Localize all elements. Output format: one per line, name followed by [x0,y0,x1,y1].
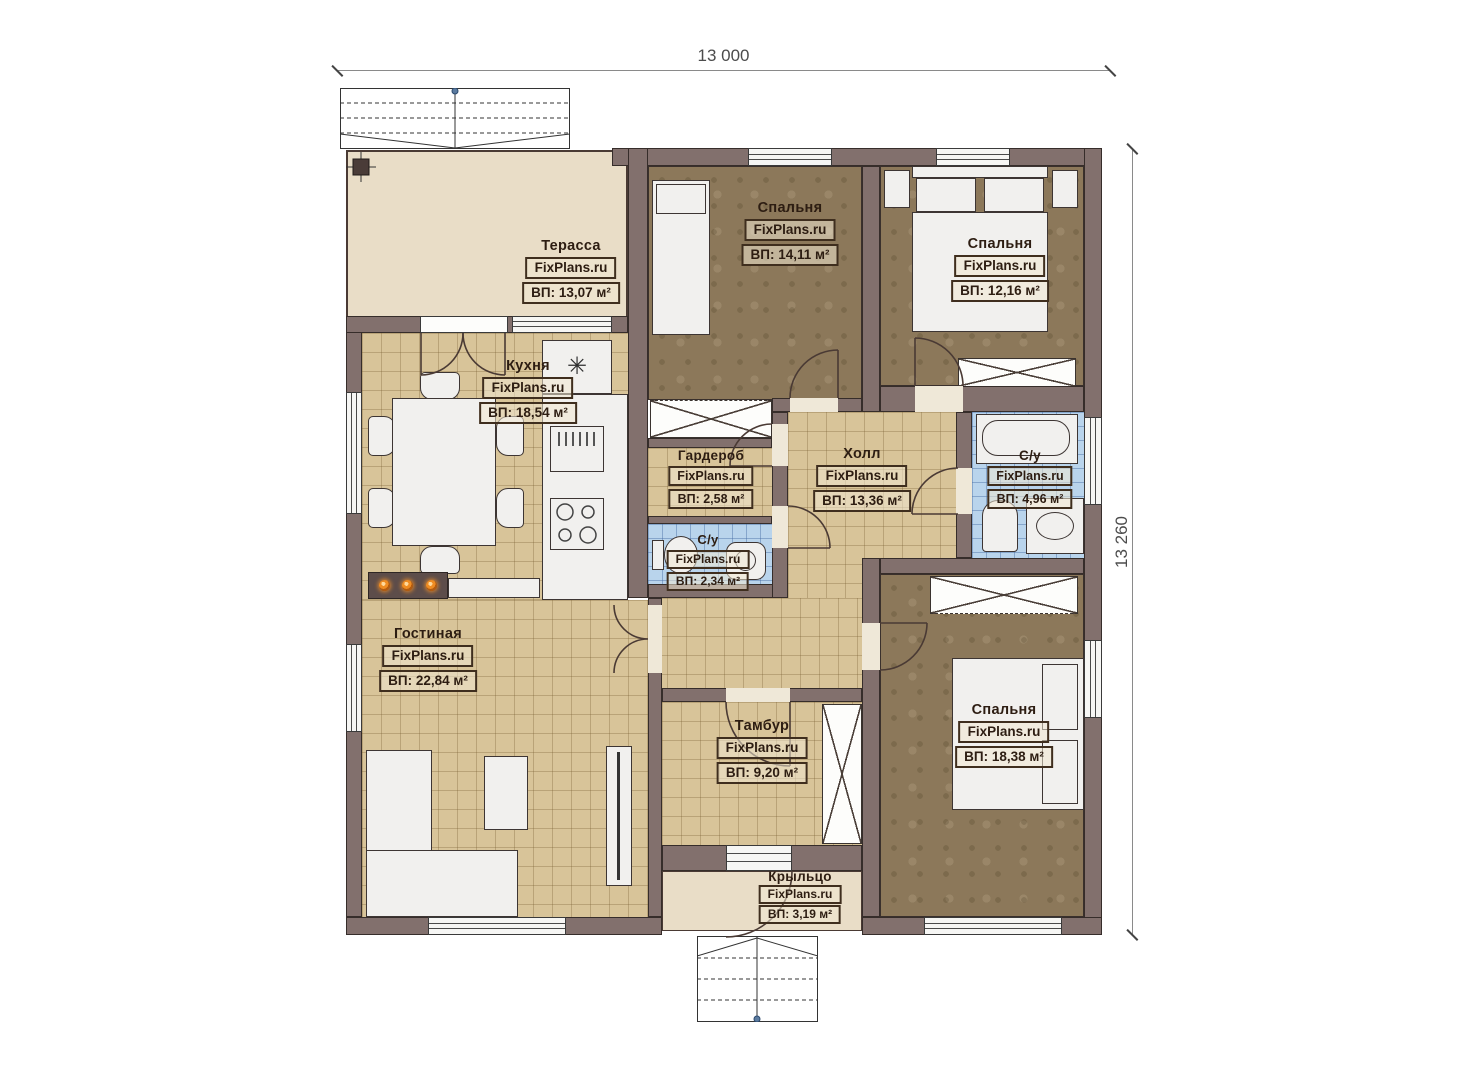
tv-panel [617,752,620,880]
sofa-section [366,850,518,917]
window-bedroom1-top [748,148,832,166]
vestibule-closet [822,704,862,844]
room-area: ВП: 2,34 м² [667,572,749,591]
room-name: Гостиная [394,626,462,642]
room-label-living: Гостиная FixPlans.ru ВП: 22,84 м² [379,626,477,692]
pillow [656,184,706,214]
watermark: FixPlans.ru [526,257,617,279]
room-name: Крыльцо [768,869,832,884]
window-bath-right [1084,417,1102,505]
room-label-vestibule: Тамбур FixPlans.ru ВП: 9,20 м² [717,718,808,784]
toilet-tank [652,540,664,570]
window-living-left [346,644,362,732]
watermark: FixPlans.ru [955,255,1046,277]
door-opening [726,688,790,702]
entry-door-threshold [726,845,792,871]
french-door-opening [420,316,508,333]
door-opening [956,468,972,514]
watermark: FixPlans.ru [745,219,836,241]
room-area: ВП: 18,54 м² [479,402,577,424]
dining-chair [420,372,460,400]
nightstand [884,170,910,208]
room-name: Гардероб [678,448,744,463]
watermark: FixPlans.ru [987,466,1072,486]
watermark: FixPlans.ru [383,645,474,667]
door-opening [915,386,963,412]
oven [550,426,604,472]
column-marker [346,152,376,182]
window-bedroom3-right [1084,640,1102,718]
door-opening [790,398,838,412]
room-label-wardrobe: Гардероб FixPlans.ru ВП: 2,58 м² [668,448,753,509]
room-name: Кухня [506,358,550,374]
nightstand [1052,170,1078,208]
dining-chair [420,546,460,574]
watermark: FixPlans.ru [667,550,750,569]
window-terrace [512,316,612,333]
room-name: Тамбур [735,718,789,734]
room-area: ВП: 2,58 м² [669,489,754,509]
door-opening [772,506,788,548]
watermark: FixPlans.ru [817,465,908,487]
fireplace [368,572,448,599]
room-label-bedroom1: Спальня FixPlans.ru ВП: 14,11 м² [742,200,839,266]
room-area: ВП: 9,20 м² [717,762,807,784]
room-label-porch: Крыльцо FixPlans.ru ВП: 3,19 м² [759,869,842,924]
fireplace-light [379,580,390,591]
wall-kitchen-bedroom1 [628,148,648,598]
room-area: ВП: 22,84 м² [379,670,477,692]
corridor-floor [648,598,862,688]
window-kitchen-left [346,392,362,514]
room-area: ВП: 18,38 м² [955,746,1053,768]
floor-plan: 13 000 13 260 [0,0,1473,1080]
bedroom1-closet [650,400,772,438]
door-opening [862,623,880,670]
watermark: FixPlans.ru [717,737,808,759]
room-area: ВП: 4,96 м² [988,489,1073,509]
room-name: Холл [843,446,881,462]
room-name: Терасса [541,238,601,254]
door-opening [648,605,662,673]
dining-chair [496,488,524,528]
bedroom3-closet [930,576,1078,614]
room-area: ВП: 13,07 м² [522,282,620,304]
room-area: ВП: 13,36 м² [813,490,911,512]
kitchen-counter [542,394,628,600]
room-name: Спальня [968,236,1033,252]
watermark: FixPlans.ru [668,466,753,486]
double-bed-headboard [912,166,1048,178]
room-label-hall: Холл FixPlans.ru ВП: 13,36 м² [813,446,911,512]
room-label-bedroom3: Спальня FixPlans.ru ВП: 18,38 м² [955,702,1053,768]
window-bedroom2-top [936,148,1010,166]
wall-closet-wardrobe [648,438,772,448]
coffee-table [484,756,528,830]
stove [550,498,604,550]
room-name: Спальня [972,702,1037,718]
window-living-bottom [428,917,566,935]
watermark: FixPlans.ru [483,377,574,399]
window-bedroom3-bottom [924,917,1062,935]
dimension-line-top [337,70,1110,71]
room-name: С/у [697,532,718,547]
room-area: ВП: 12,16 м² [951,280,1049,302]
watermark: FixPlans.ru [759,885,842,904]
sink-bowl [1036,512,1074,540]
watermark: FixPlans.ru [959,721,1050,743]
dimension-height-label: 13 260 [1112,462,1132,622]
kitchen-bench [448,578,540,598]
room-name: С/у [1019,448,1041,463]
room-label-kitchen: Кухня FixPlans.ru ВП: 18,54 м² [479,358,577,424]
dimension-width-label: 13 000 [337,46,1110,66]
dimension-line-right [1132,148,1133,935]
pillow [916,178,976,212]
bedroom2-closet [958,358,1076,387]
wall-right [1084,148,1102,935]
fireplace-light [402,580,413,591]
room-label-bath-big: С/у FixPlans.ru ВП: 4,96 м² [987,448,1072,509]
door-opening [772,424,788,466]
wall-bedroom2-bath [880,386,1084,412]
fireplace-light [426,580,437,591]
wall-bedroom1-bedroom2 [862,166,880,412]
wall-bedroom3-left [862,558,880,917]
room-label-terrace: Терасса FixPlans.ru ВП: 13,07 м² [522,238,620,304]
room-name: Спальня [758,200,823,216]
room-label-bedroom2: Спальня FixPlans.ru ВП: 12,16 м² [951,236,1049,302]
room-label-bath-small: С/у FixPlans.ru ВП: 2,34 м² [667,532,750,591]
room-area: ВП: 3,19 м² [759,905,841,924]
wall-wardrobe-bath [648,516,772,524]
terrace-stairs [340,88,570,149]
porch-stairs [697,936,818,1022]
wall-hall-bedroom3 [880,558,1084,574]
pillow [984,178,1044,212]
room-area: ВП: 14,11 м² [742,244,839,266]
wall-top [612,148,1102,166]
